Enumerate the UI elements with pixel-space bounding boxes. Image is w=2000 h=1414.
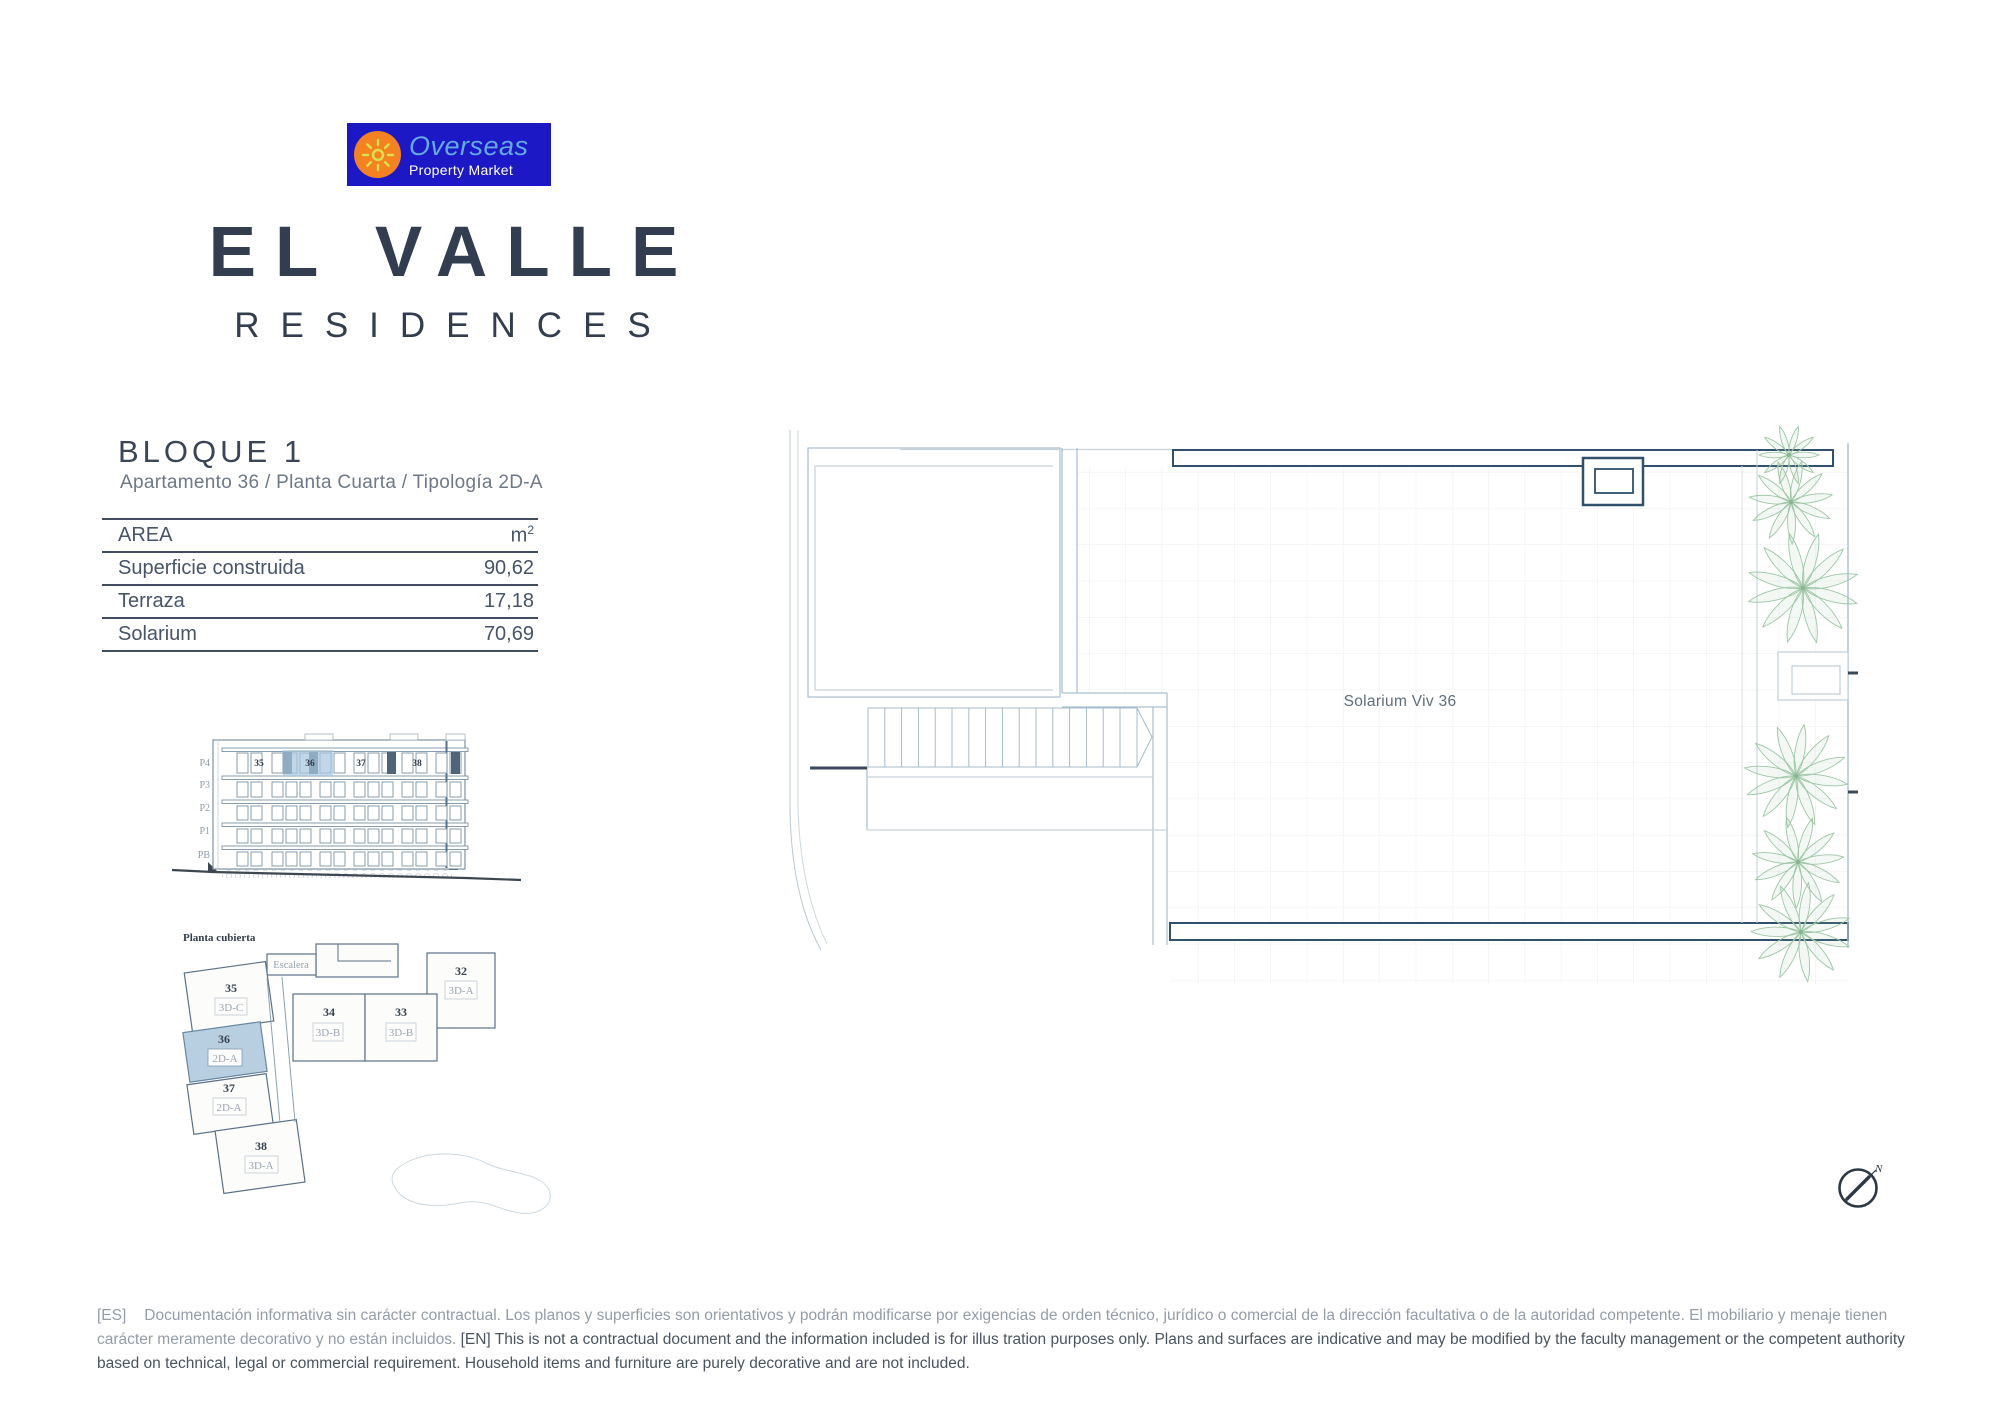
svg-text:38: 38	[412, 759, 422, 769]
svg-text:3D-B: 3D-B	[389, 1027, 413, 1039]
svg-text:PB: PB	[198, 850, 211, 861]
planter-inner	[1792, 666, 1840, 694]
area-header-label: AREA	[118, 524, 172, 547]
stair-direction-arrow	[1137, 708, 1152, 767]
development-title: EL VALLE	[160, 212, 746, 293]
svg-text:37: 37	[223, 1081, 235, 1095]
building-elevation: 35 36 37 38 P4 P3 P2 P1 PB	[168, 728, 525, 890]
row-label: Solarium	[118, 623, 197, 646]
logo-name: Overseas	[409, 133, 529, 160]
chimney-inner	[1595, 469, 1633, 493]
table-row: Solarium 70,69	[102, 619, 538, 652]
svg-text:P1: P1	[199, 826, 210, 837]
stairs	[810, 708, 1152, 768]
svg-text:37: 37	[356, 759, 366, 769]
logo-tagline: Property Market	[409, 163, 529, 177]
key-plan-title: Planta cubierta	[183, 932, 256, 944]
legal-disclaimer: [ES]Documentación informativa sin caráct…	[97, 1304, 1911, 1376]
compass-icon: N	[1840, 1163, 1884, 1207]
svg-text:36: 36	[305, 759, 315, 769]
svg-text:2D-A: 2D-A	[212, 1053, 237, 1065]
compass-north-label: N	[1874, 1163, 1883, 1175]
svg-text:3D-A: 3D-A	[448, 985, 473, 997]
svg-text:3D-B: 3D-B	[316, 1027, 340, 1039]
svg-text:35: 35	[225, 981, 237, 995]
es-tag: [ES]	[97, 1307, 126, 1324]
brochure-page: Overseas Property Market EL VALLE RESIDE…	[0, 0, 2000, 1414]
table-row: Terraza 17,18	[102, 586, 538, 619]
solarium-label: Solarium Viv 36	[1344, 693, 1457, 710]
agency-logo: Overseas Property Market	[347, 123, 551, 186]
top-parapet	[1173, 450, 1833, 466]
row-label: Terraza	[118, 590, 185, 613]
svg-text:35: 35	[254, 759, 264, 769]
svg-text:32: 32	[455, 964, 467, 978]
row-value: 70,69	[484, 623, 534, 646]
block-heading: BLOQUE 1	[118, 434, 305, 470]
table-row: Superficie construida 90,62	[102, 553, 538, 586]
svg-text:33: 33	[395, 1005, 407, 1019]
svg-text:P4: P4	[199, 758, 210, 769]
svg-text:P3: P3	[199, 780, 210, 791]
svg-text:P2: P2	[199, 803, 210, 814]
apartment-subtitle: Apartamento 36 / Planta Cuarta / Tipolog…	[120, 472, 543, 494]
row-label: Superficie construida	[118, 557, 305, 580]
svg-text:2D-A: 2D-A	[216, 1102, 241, 1114]
area-table: AREA m2 Superficie construida 90,62 Terr…	[102, 518, 538, 652]
svg-text:3D-C: 3D-C	[219, 1002, 243, 1014]
sun-icon	[354, 131, 401, 178]
svg-text:38: 38	[255, 1139, 267, 1153]
development-subtitle: RESIDENCES	[160, 306, 746, 346]
row-value: 90,62	[484, 557, 534, 580]
floor-labels: P4 P3 P2 P1 PB	[198, 758, 211, 861]
key-plan: Planta cubierta Escalera 35 36 37 38 34	[148, 925, 560, 1257]
svg-text:3D-A: 3D-A	[248, 1160, 273, 1172]
svg-text:36: 36	[218, 1032, 230, 1046]
tile-floor	[1077, 466, 1848, 985]
solarium-floor-plan: Solarium Viv 36 N	[785, 425, 1945, 1225]
svg-text:34: 34	[323, 1005, 335, 1019]
area-header-unit: m2	[511, 523, 534, 548]
en-tag: [EN]	[461, 1331, 491, 1348]
lower-roof-outline	[808, 448, 1060, 697]
pool-outline	[392, 1154, 550, 1213]
stairs-label: Escalera	[273, 960, 309, 971]
bottom-parapet	[1170, 923, 1848, 940]
table-header-row: AREA m2	[102, 518, 538, 553]
row-value: 17,18	[484, 590, 534, 613]
